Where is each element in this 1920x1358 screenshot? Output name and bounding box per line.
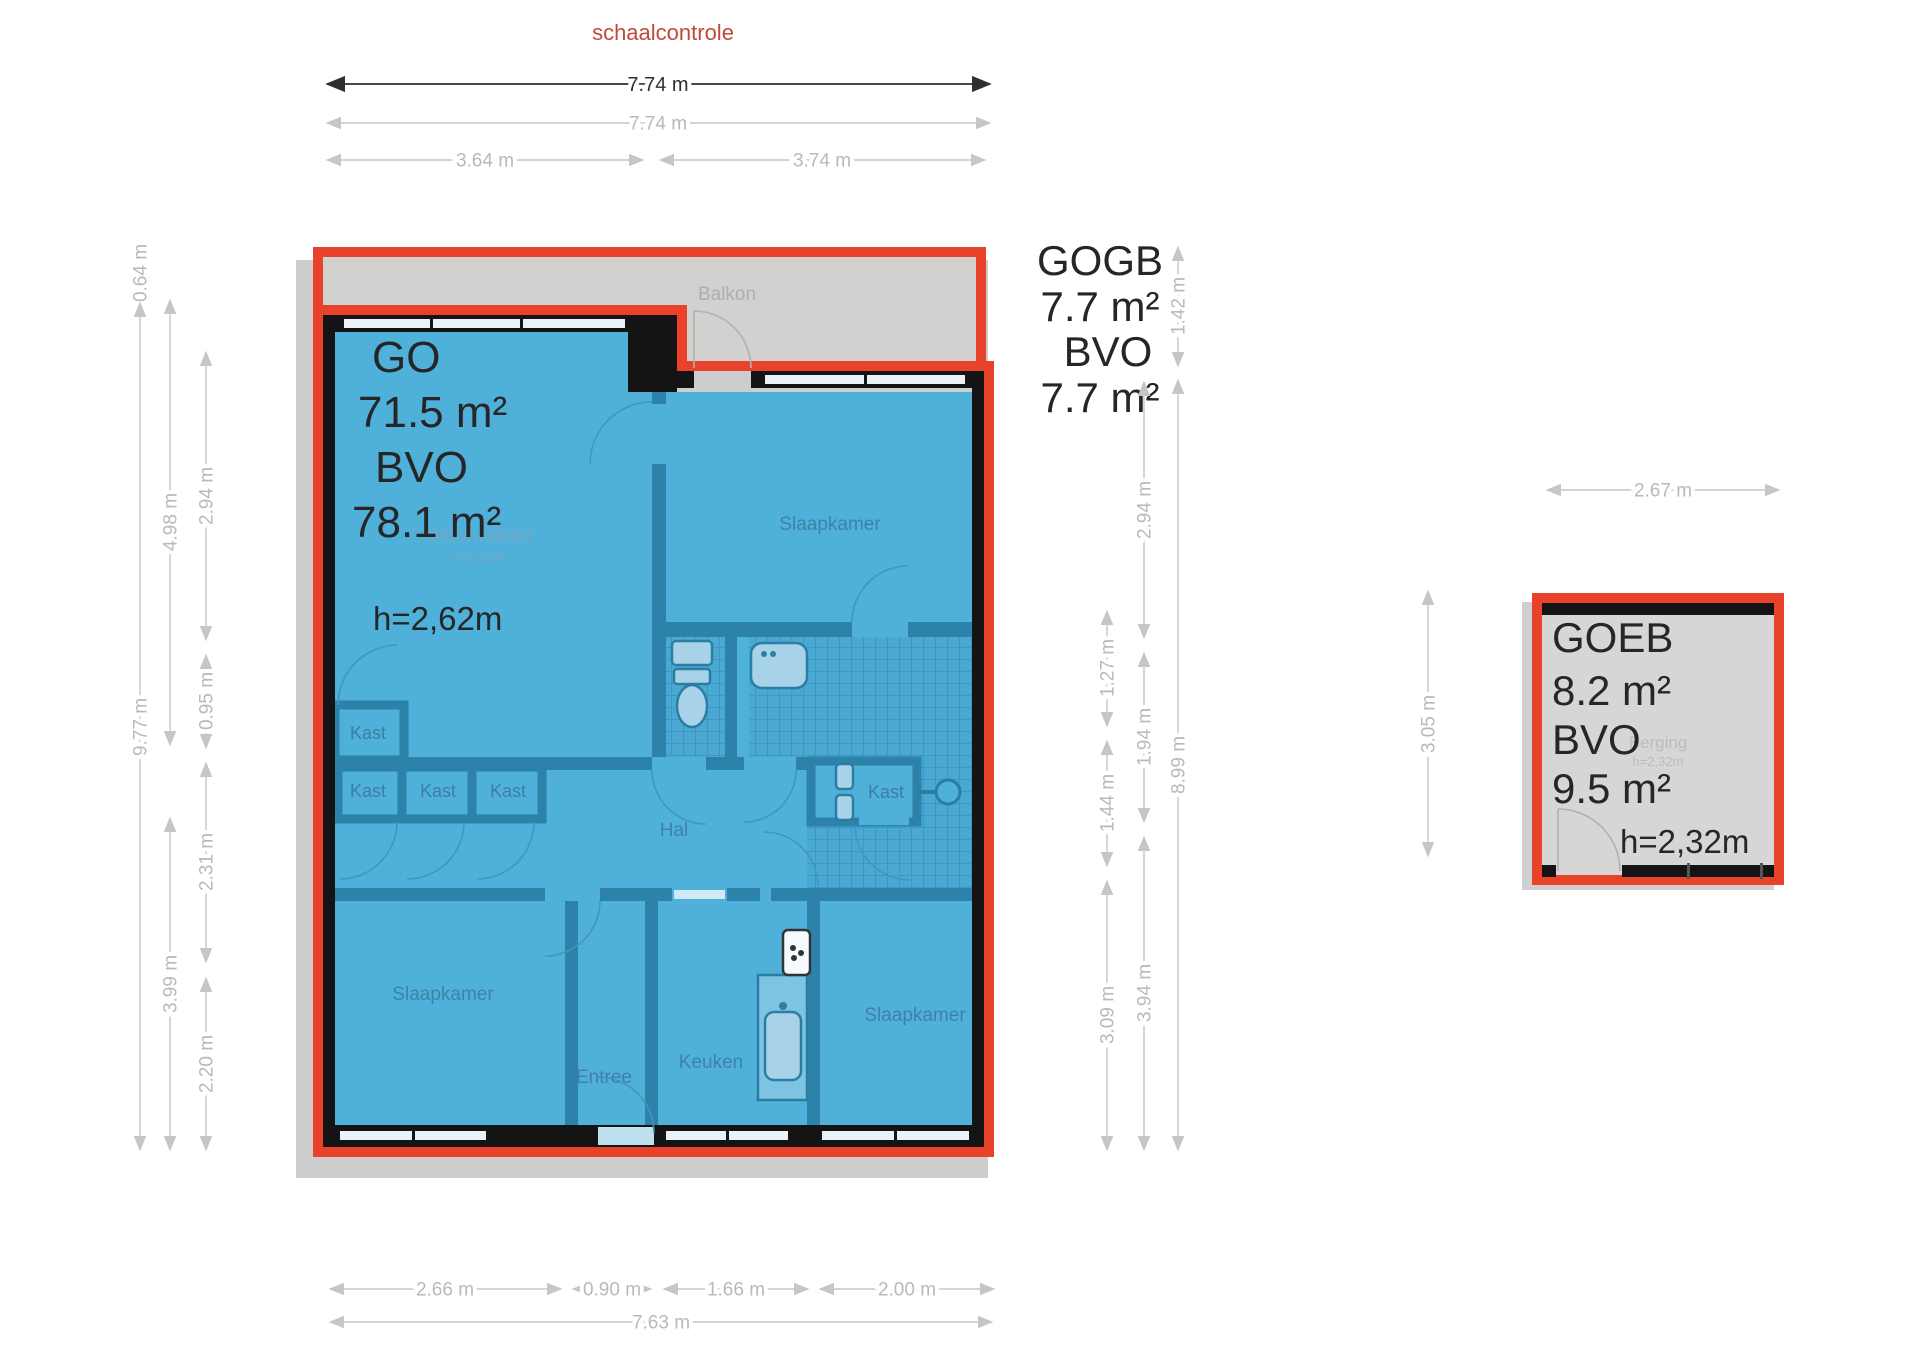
dim-left-0: 0.64 m bbox=[131, 244, 152, 302]
main-area-line-3: BVO bbox=[375, 443, 468, 492]
main-area-line-4: 78.1 m² bbox=[352, 498, 501, 547]
main-area-height: h=2,62m bbox=[373, 600, 502, 637]
dim-right-2: 3.09 m bbox=[1098, 986, 1119, 1044]
bathroom-tile-floor-right bbox=[921, 757, 972, 888]
mv-unit bbox=[783, 930, 810, 975]
toilet-bowl bbox=[677, 685, 707, 727]
room-label-slaapkamer-ne: Slaapkamer bbox=[779, 514, 881, 535]
room-label-slaapkamer-sw: Slaapkamer bbox=[392, 984, 494, 1005]
dim-left-5: 0.95 m bbox=[197, 672, 218, 730]
storage-area-height: h=2,32m bbox=[1620, 823, 1749, 860]
dim-top-3: 3.74 m bbox=[793, 151, 851, 172]
room-label-entree: Entree bbox=[576, 1067, 632, 1088]
dim-right-1: 1.44 m bbox=[1098, 774, 1119, 832]
dim-bottom-0: 2.66 m bbox=[416, 1280, 474, 1301]
main-area-line-2: 71.5 m² bbox=[358, 388, 507, 437]
room-label-woonkamer-height: h=2,62m bbox=[453, 549, 508, 565]
dim-top-0: 7.74 m bbox=[627, 74, 688, 96]
washbasin bbox=[672, 641, 712, 665]
balcony-area-line-2: 7.7 m² bbox=[1040, 283, 1159, 330]
bathtub-faucet bbox=[761, 651, 767, 657]
room-label-balkon: Balkon bbox=[698, 284, 756, 305]
dim-left-4: 2.94 m bbox=[197, 467, 218, 525]
room-label-keuken: Keuken bbox=[679, 1052, 743, 1073]
room-label-hal: Hal bbox=[660, 820, 689, 841]
dim-right-7: 8.99 m bbox=[1169, 736, 1190, 794]
closet-bathroom-door-gap bbox=[859, 814, 909, 825]
dims-bottom: 2.66 m 0.90 m 1.66 m 2.00 m 7.63 m bbox=[330, 1280, 994, 1334]
dim-right-0: 1.27 m bbox=[1098, 639, 1119, 697]
boiler-unit-1 bbox=[836, 764, 853, 789]
balcony-area-line-4: 7.7 m² bbox=[1040, 374, 1159, 421]
room-label-kast-3: Kast bbox=[420, 781, 456, 801]
dim-storage-1: 3.05 m bbox=[1419, 695, 1440, 753]
dims-top: 7.74 m 7.74 m 3.64 m 3.74 m bbox=[327, 74, 990, 172]
dim-left-3: 3.99 m bbox=[161, 955, 182, 1013]
scale-check-note: schaalcontrole bbox=[592, 20, 734, 45]
bathroom-tile-floor-lower bbox=[807, 826, 921, 888]
dim-storage-0: 2.67 m bbox=[1634, 481, 1692, 502]
dim-top-2: 3.64 m bbox=[456, 151, 514, 172]
kitchen-sink bbox=[765, 1012, 801, 1080]
dim-bottom-4: 7.63 m bbox=[632, 1313, 690, 1334]
storage-area-line-3: BVO bbox=[1552, 716, 1641, 763]
vent-circle bbox=[936, 780, 960, 804]
kitchen-faucet bbox=[779, 1002, 787, 1010]
dim-bottom-1: 0.90 m bbox=[583, 1280, 641, 1301]
toilet-tank bbox=[674, 669, 710, 684]
dim-left-2: 4.98 m bbox=[161, 493, 182, 551]
threshold bbox=[674, 890, 725, 899]
bathtub-faucet-2 bbox=[770, 651, 776, 657]
room-label-kast-1: Kast bbox=[350, 723, 386, 743]
storage-area-line-4: 9.5 m² bbox=[1552, 765, 1671, 812]
dims-left: 0.64 m 9.77 m 4.98 m 3.99 m 2.94 m 0.95 … bbox=[131, 244, 218, 1150]
boiler-unit-2 bbox=[836, 795, 853, 820]
dim-right-4: 1.94 m bbox=[1135, 708, 1156, 766]
dim-right-6: 1.42 m bbox=[1169, 277, 1190, 335]
bathtub bbox=[751, 643, 807, 688]
storage-area-line-2: 8.2 m² bbox=[1552, 667, 1671, 714]
room-label-slaapkamer-se: Slaapkamer bbox=[864, 1005, 966, 1026]
dim-top-1: 7.74 m bbox=[629, 114, 687, 135]
room-label-kast-2: Kast bbox=[350, 781, 386, 801]
dim-right-3: 2.94 m bbox=[1135, 481, 1156, 539]
floorplan-page: Balkon Woonkamer h=2,62m Slaapkamer Slaa… bbox=[0, 0, 1920, 1358]
dim-left-6: 2.31 m bbox=[197, 833, 218, 891]
floorplan-svg: Balkon Woonkamer h=2,62m Slaapkamer Slaa… bbox=[0, 0, 1920, 1358]
dim-left-7: 2.20 m bbox=[197, 1035, 218, 1093]
dim-bottom-3: 2.00 m bbox=[878, 1280, 936, 1301]
room-label-kast-4: Kast bbox=[490, 781, 526, 801]
dim-left-1: 9.77 m bbox=[131, 698, 152, 756]
balcony-area-line-1: GOGB bbox=[1037, 237, 1163, 284]
storage-area-line-1: GOEB bbox=[1552, 614, 1673, 661]
dim-right-5: 3.94 m bbox=[1135, 964, 1156, 1022]
dim-bottom-2: 1.66 m bbox=[707, 1280, 765, 1301]
main-area-line-1: GO bbox=[372, 333, 440, 382]
balcony-area-line-3: BVO bbox=[1064, 328, 1153, 375]
room-label-kast-5: Kast bbox=[868, 782, 904, 802]
